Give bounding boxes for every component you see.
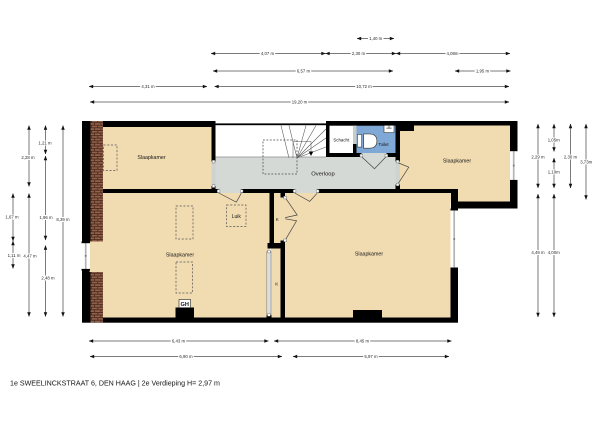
svg-text:1,11 m: 1,11 m bbox=[8, 253, 21, 258]
svg-text:Slaapkamer: Slaapkamer bbox=[355, 252, 383, 258]
svg-text:8,39 m: 8,39 m bbox=[56, 217, 70, 222]
svg-text:Overloop: Overloop bbox=[311, 172, 335, 178]
svg-text:3,73m: 3,73m bbox=[580, 160, 592, 165]
svg-text:1,96 m: 1,96 m bbox=[39, 215, 53, 220]
svg-text:8,45 m: 8,45 m bbox=[356, 339, 370, 344]
svg-text:Toilet: Toilet bbox=[378, 142, 389, 147]
svg-text:1,95 m: 1,95 m bbox=[476, 69, 490, 74]
svg-text:Luik: Luik bbox=[232, 214, 242, 220]
svg-text:19,20 m: 19,20 m bbox=[292, 100, 308, 105]
svg-text:Slaapkamer: Slaapkamer bbox=[166, 253, 194, 259]
svg-text:GH: GH bbox=[181, 302, 189, 308]
svg-text:K: K bbox=[276, 217, 279, 222]
svg-text:2,30 m: 2,30 m bbox=[564, 155, 578, 160]
svg-text:2,48 m: 2,48 m bbox=[41, 276, 55, 281]
svg-text:1e SWEELINCKSTRAAT 6, DEN HAAG: 1e SWEELINCKSTRAAT 6, DEN HAAG | 2e Verd… bbox=[10, 380, 220, 388]
svg-text:4,31 m: 4,31 m bbox=[141, 84, 155, 89]
svg-text:K: K bbox=[275, 281, 278, 286]
svg-text:Slaapkamer: Slaapkamer bbox=[443, 159, 471, 165]
svg-text:1,67 m: 1,67 m bbox=[5, 215, 19, 220]
svg-text:1,40 m: 1,40 m bbox=[369, 36, 383, 41]
svg-text:6,57 m: 6,57 m bbox=[297, 69, 311, 74]
svg-text:4,00m: 4,00m bbox=[548, 250, 560, 255]
svg-text:6,90 m: 6,90 m bbox=[179, 354, 193, 359]
svg-text:Slaapkamer: Slaapkamer bbox=[137, 155, 165, 161]
svg-text:5,97 m: 5,97 m bbox=[364, 354, 378, 359]
svg-text:2,28 m: 2,28 m bbox=[21, 155, 35, 160]
svg-text:1,05m: 1,05m bbox=[548, 138, 560, 143]
svg-text:4,49 m: 4,49 m bbox=[531, 250, 545, 255]
svg-text:4,08m: 4,08m bbox=[447, 51, 459, 56]
svg-text:1,21 m: 1,21 m bbox=[38, 141, 52, 146]
svg-text:4,07 m: 4,07 m bbox=[261, 51, 275, 56]
svg-text:1,10m: 1,10m bbox=[548, 170, 560, 175]
svg-text:Schacht: Schacht bbox=[333, 137, 350, 142]
svg-text:10,72 m: 10,72 m bbox=[356, 84, 372, 89]
svg-text:4,47 m: 4,47 m bbox=[23, 254, 37, 259]
svg-text:2,30 m: 2,30 m bbox=[352, 51, 366, 56]
svg-text:6,43 m: 6,43 m bbox=[172, 339, 186, 344]
svg-text:2,29 m: 2,29 m bbox=[531, 155, 545, 160]
